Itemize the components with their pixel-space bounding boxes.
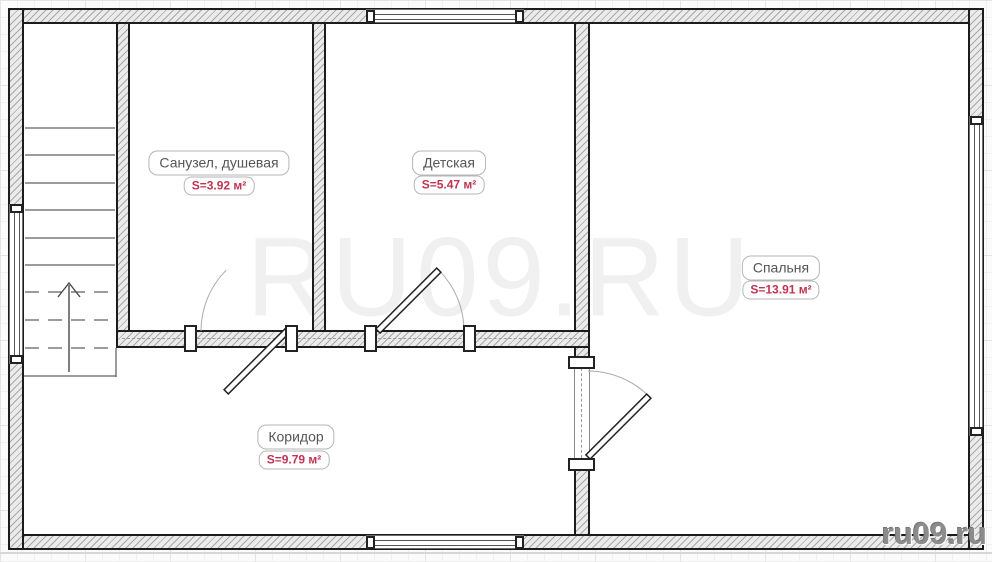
plan-linework	[0, 0, 992, 562]
door-jamb-icon	[184, 325, 197, 352]
door-swing-arc	[439, 270, 464, 331]
door-swing-arc	[588, 371, 649, 396]
floor-plan: RU09.RU	[0, 0, 992, 562]
area-label-corridor: S=9.79 м²	[259, 451, 330, 470]
door-swing-arc	[201, 270, 226, 331]
door-jamb-icon	[568, 356, 595, 369]
bedroom-door	[586, 371, 651, 459]
children-door	[376, 268, 464, 333]
stairs-up-arrow-icon	[58, 283, 80, 372]
bathroom-door	[201, 270, 289, 394]
door-jamb-icon	[364, 325, 377, 352]
door-leaf	[376, 268, 441, 333]
door-jamb-icon	[285, 325, 298, 352]
stairs	[24, 128, 116, 377]
door-leaf	[586, 394, 651, 459]
site-credit: ru09.ru	[882, 516, 987, 552]
area-label-children: S=5.47 м²	[414, 176, 485, 195]
room-label-children: Детская	[412, 151, 486, 176]
door-jamb-icon	[568, 458, 595, 471]
door-leaf	[224, 329, 289, 394]
room-label-corridor: Коридор	[257, 425, 334, 450]
room-label-bathroom: Санузел, душевая	[148, 151, 289, 176]
area-label-bedroom: S=13.91 м²	[742, 281, 819, 300]
room-label-bedroom: Спальня	[742, 256, 820, 281]
area-label-bathroom: S=3.92 м²	[184, 177, 255, 196]
door-jamb-icon	[463, 325, 476, 352]
